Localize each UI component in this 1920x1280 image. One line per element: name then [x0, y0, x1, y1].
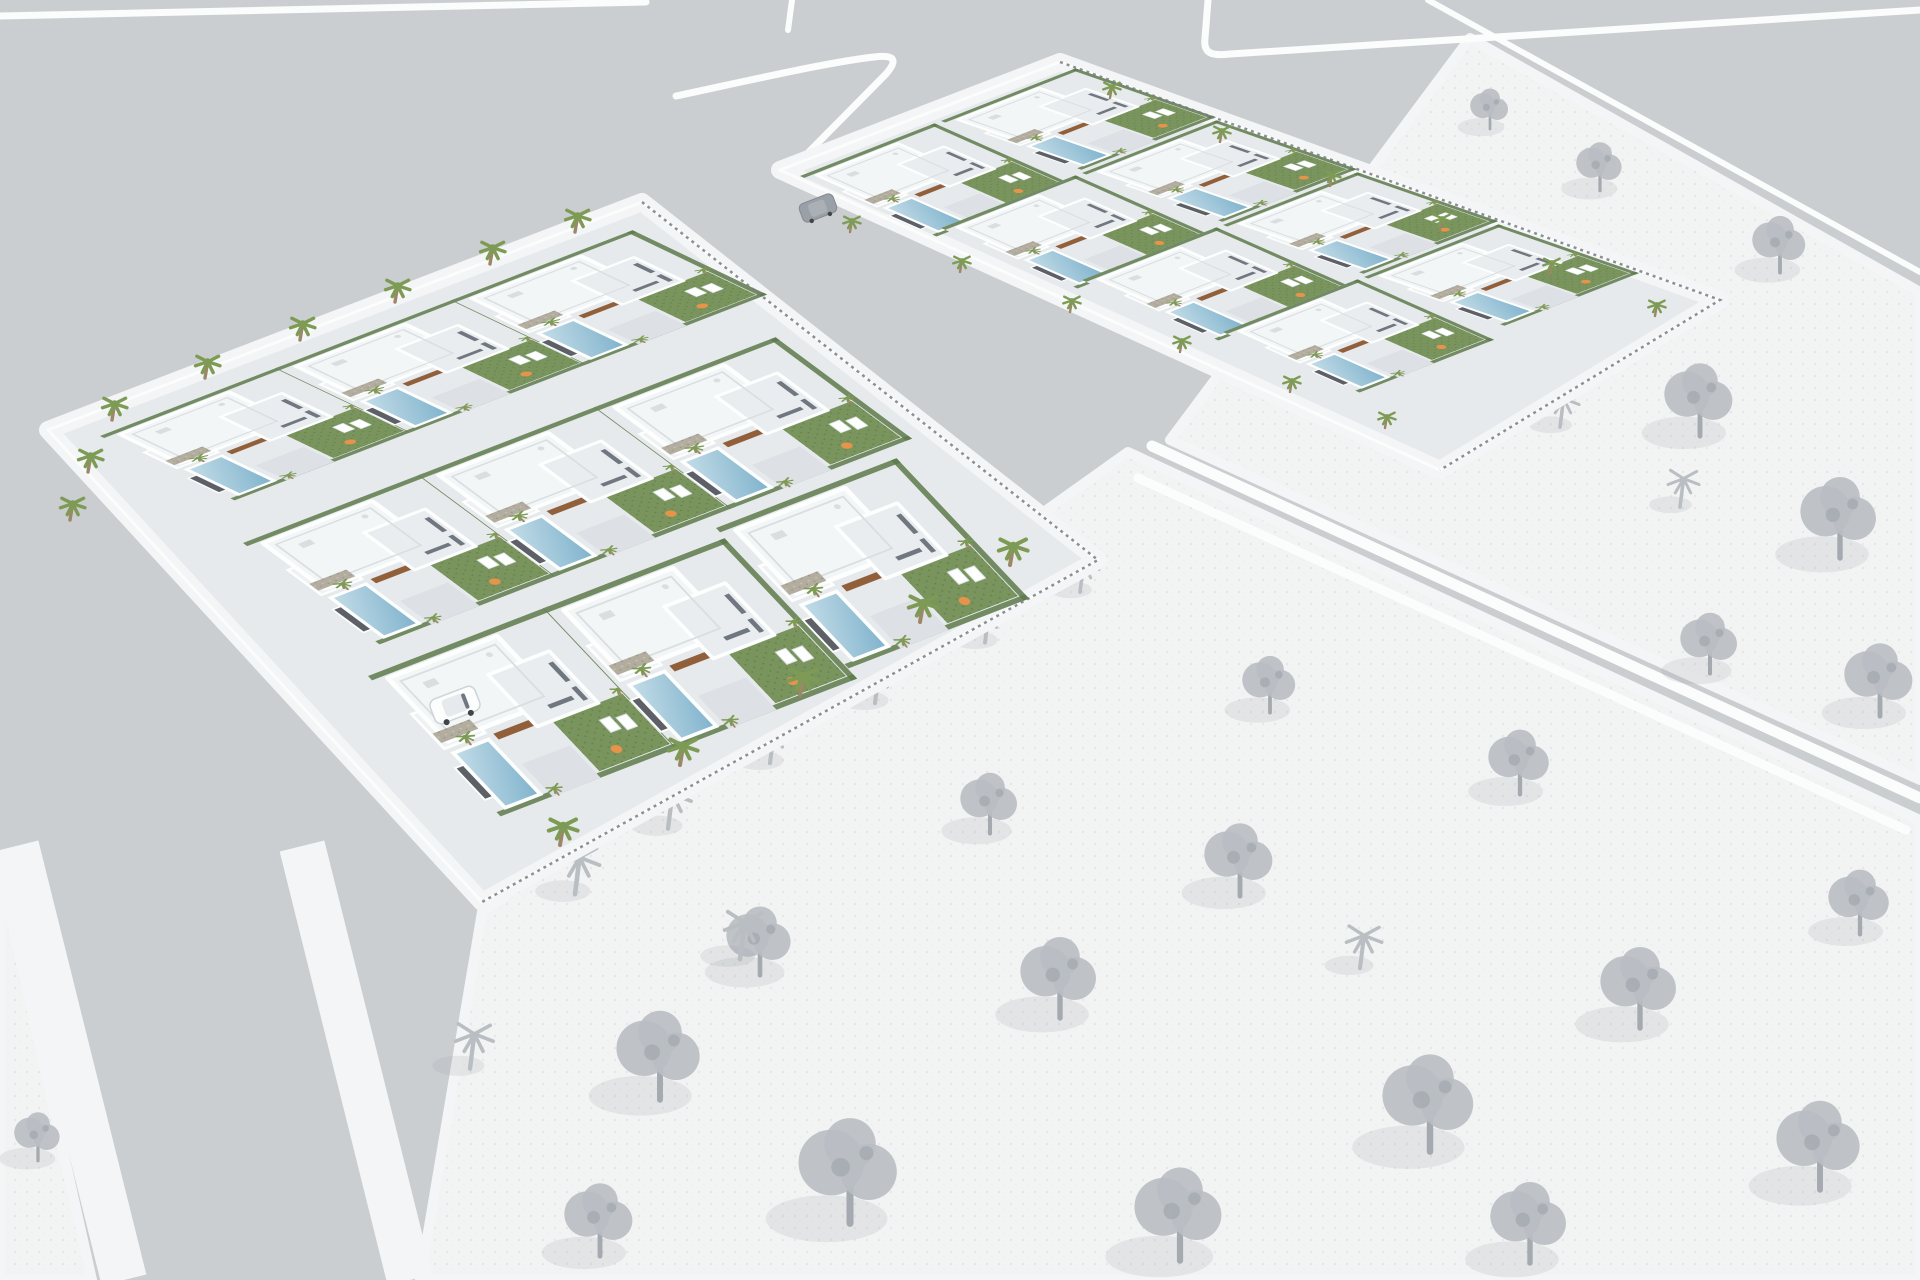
aerial-development-render [0, 0, 1920, 1280]
render-canvas [0, 0, 1920, 1280]
road-edge-line [788, 0, 792, 30]
